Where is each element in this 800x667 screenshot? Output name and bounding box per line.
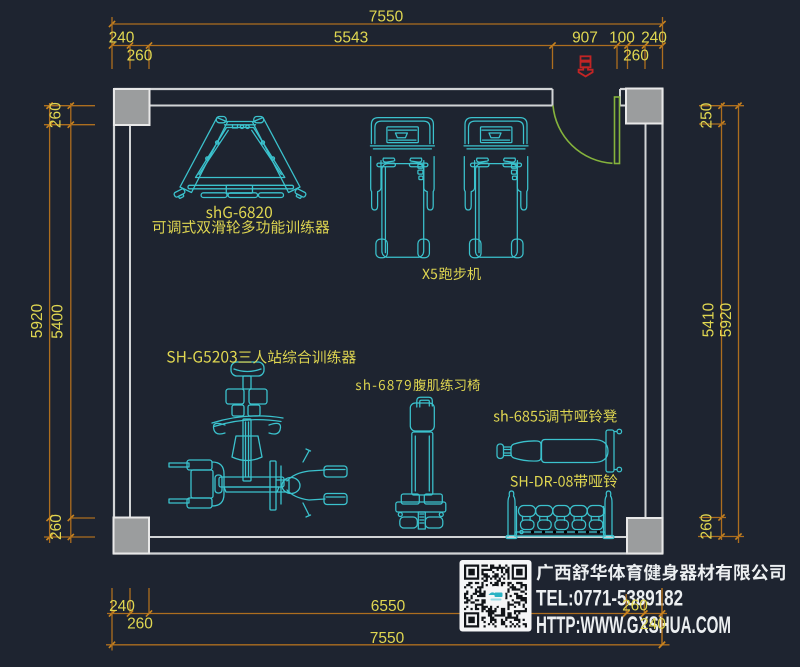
svg-text:5543: 5543 xyxy=(334,30,368,47)
svg-text:HTTP:WWW.GXSHUA.COM: HTTP:WWW.GXSHUA.COM xyxy=(536,612,731,639)
svg-text:260: 260 xyxy=(623,48,649,65)
svg-text:TEL:0771-5389182: TEL:0771-5389182 xyxy=(536,586,683,611)
svg-text:260: 260 xyxy=(622,598,648,615)
svg-text:260: 260 xyxy=(48,102,65,128)
svg-text:907: 907 xyxy=(572,30,598,47)
svg-text:260: 260 xyxy=(127,616,153,633)
svg-text:260: 260 xyxy=(48,514,65,540)
svg-text:7550: 7550 xyxy=(370,630,405,647)
svg-text:7550: 7550 xyxy=(369,9,404,26)
svg-text:5400: 5400 xyxy=(50,304,67,339)
svg-text:5410: 5410 xyxy=(701,302,718,337)
svg-text:100: 100 xyxy=(609,30,635,47)
svg-text:250: 250 xyxy=(699,102,716,128)
svg-text:260: 260 xyxy=(699,513,716,539)
svg-text:6550: 6550 xyxy=(371,598,406,615)
svg-text:240: 240 xyxy=(641,30,667,47)
svg-text:5920: 5920 xyxy=(718,302,735,337)
svg-text:5920: 5920 xyxy=(29,303,46,338)
svg-text:240: 240 xyxy=(640,616,666,633)
svg-text:240: 240 xyxy=(109,30,135,47)
svg-text:260: 260 xyxy=(127,48,153,65)
svg-text:240: 240 xyxy=(109,598,135,615)
